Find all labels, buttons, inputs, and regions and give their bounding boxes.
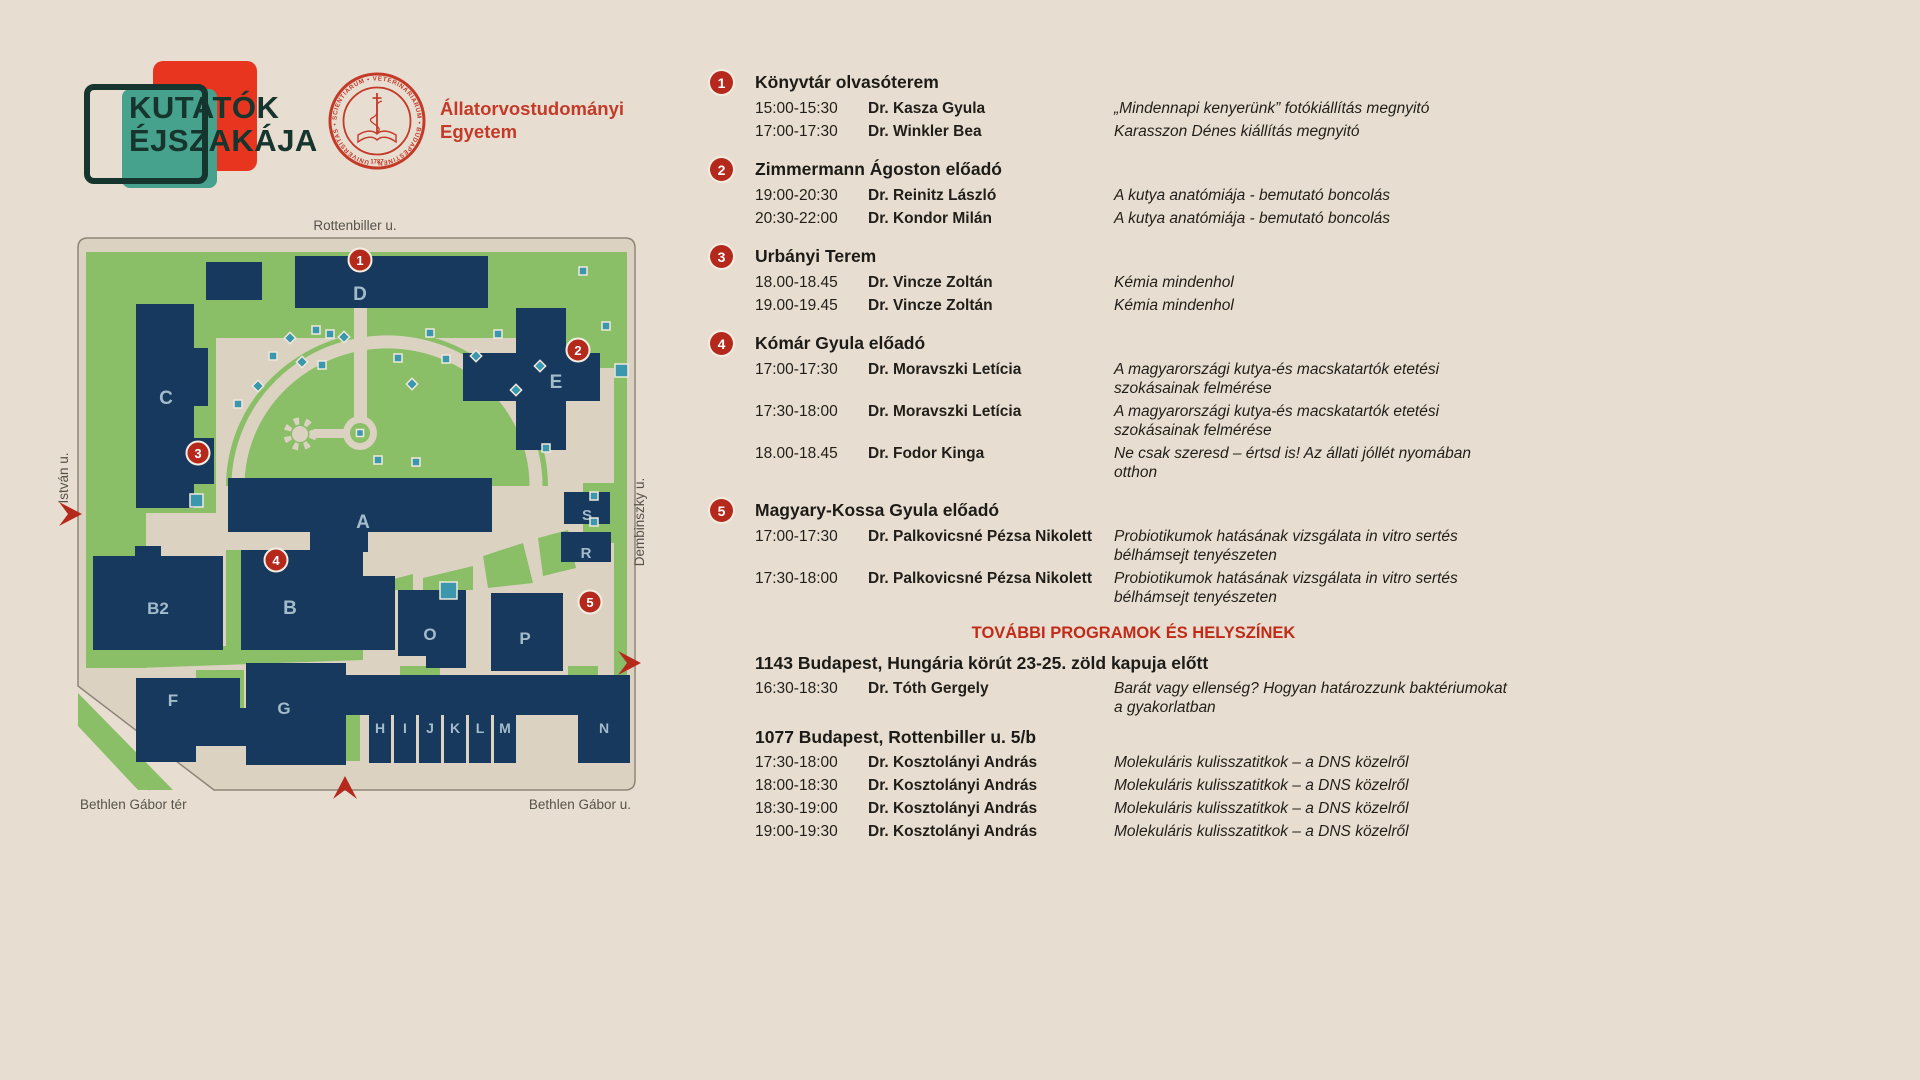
event-speaker: Dr. Reinitz László [868, 186, 1114, 205]
venue-block: 5Magyary-Kossa Gyula előadó17:00-17:30Dr… [710, 499, 1512, 607]
event-title: Barát vagy ellenség? Hogyan határozzunk … [1114, 679, 1512, 717]
event-time: 19:00-19:30 [755, 822, 868, 841]
event-speaker: Dr. Vincze Zoltán [868, 296, 1114, 315]
event-title: A kutya anatómiája - bemutató boncolás [1114, 186, 1512, 205]
venue-name: Zimmermann Ágoston előadó [755, 159, 1002, 180]
venue-header: 5Magyary-Kossa Gyula előadó [710, 499, 1512, 522]
venue-block: 4Kómár Gyula előadó17:00-17:30Dr. Moravs… [710, 332, 1512, 482]
event-time: 16:30-18:30 [755, 679, 868, 717]
venue-name: Kómár Gyula előadó [755, 333, 925, 354]
venue-block: 1Könyvtár olvasóterem15:00-15:30Dr. Kasz… [710, 71, 1512, 141]
venue-number-badge: 1 [710, 71, 733, 94]
map-marker-2: 2 [567, 339, 590, 362]
event-speaker: Dr. Kasza Gyula [868, 99, 1114, 118]
venue-block: 3Urbányi Terem18.00-18.45Dr. Vincze Zolt… [710, 245, 1512, 315]
map-marker-3: 3 [187, 442, 210, 465]
tree-marker [426, 329, 434, 337]
event-speaker: Dr. Fodor Kinga [868, 444, 1114, 482]
event-row: 17:00-17:30Dr. Winkler BeaKarasszon Déne… [755, 122, 1512, 141]
venue-header: 4Kómár Gyula előadó [710, 332, 1512, 355]
seal-year: 1787 [370, 160, 384, 166]
tree-marker [326, 330, 334, 338]
street-label-dembinszky: Dembinszky u. [632, 478, 647, 567]
venue-number-badge: 3 [710, 245, 733, 268]
event-speaker: Dr. Moravszki Letícia [868, 402, 1114, 440]
event-row: 18:00-18:30Dr. Kosztolányi AndrásMolekul… [755, 776, 1512, 795]
svg-text:1: 1 [356, 253, 363, 268]
location-block: 1077 Budapest, Rottenbiller u. 5/b17:30-… [710, 727, 1512, 841]
event-time: 17:00-17:30 [755, 122, 868, 141]
event-row: 15:00-15:30Dr. Kasza Gyula„Mindennapi ke… [755, 99, 1512, 118]
building-label-k: K [450, 720, 460, 736]
event-time: 18.00-18.45 [755, 444, 868, 482]
tree-marker [312, 326, 320, 334]
location-name: 1077 Budapest, Rottenbiller u. 5/b [755, 727, 1512, 748]
event-time: 18.00-18.45 [755, 273, 868, 292]
event-time: 20:30-22:00 [755, 209, 868, 228]
venue-name: Urbányi Terem [755, 246, 876, 267]
street-label-istvan: István u. [56, 452, 71, 503]
event-title: Probiotikumok hatásának vizsgálata in vi… [1114, 527, 1512, 565]
tree-marker [394, 354, 402, 362]
location-name: 1143 Budapest, Hungária körút 23-25. zöl… [755, 653, 1512, 674]
event-title: A magyarországi kutya-és macskatartók et… [1114, 402, 1512, 440]
event-time: 17:30-18:00 [755, 402, 868, 440]
tree-marker [542, 444, 550, 452]
event-row: 16:30-18:30Dr. Tóth GergelyBarát vagy el… [755, 679, 1512, 717]
tree-marker [318, 361, 326, 369]
more-programs-heading: TOVÁBBI PROGRAMOK ÉS HELYSZÍNEK [755, 624, 1512, 643]
event-time: 17:30-18:00 [755, 569, 868, 607]
event-row: 19:00-20:30Dr. Reinitz LászlóA kutya ana… [755, 186, 1512, 205]
event-row: 18.00-18.45Dr. Vincze ZoltánKémia minden… [755, 273, 1512, 292]
building-small [206, 262, 262, 300]
venue-number-badge: 2 [710, 158, 733, 181]
tree-marker [615, 364, 628, 377]
event-title: Kémia mindenhol [1114, 273, 1512, 292]
building-label-b2: B2 [147, 599, 169, 618]
event-title: Probiotikumok hatásának vizsgálata in vi… [1114, 569, 1512, 607]
event-speaker: Dr. Winkler Bea [868, 122, 1114, 141]
building-label-n: N [599, 720, 609, 736]
venue-header: 1Könyvtár olvasóterem [710, 71, 1512, 94]
building-label-d: D [353, 284, 367, 305]
event-row: 18:30-19:00Dr. Kosztolányi AndrásMolekul… [755, 799, 1512, 818]
building-g [246, 663, 346, 765]
building-b2 [93, 546, 223, 650]
event-speaker: Dr. Palkovicsné Pézsa Nikolett [868, 569, 1114, 607]
event-row: 17:30-18:00Dr. Kosztolányi AndrásMolekul… [755, 753, 1512, 772]
building-label-j: J [426, 720, 434, 736]
event-speaker: Dr. Kosztolányi András [868, 799, 1114, 818]
tree-marker [412, 458, 420, 466]
venue-block: 2Zimmermann Ágoston előadó19:00-20:30Dr.… [710, 158, 1512, 228]
building-label-g: G [277, 699, 290, 718]
venue-header: 2Zimmermann Ágoston előadó [710, 158, 1512, 181]
kutatok-ejszakaja-logo: KUTATÓK ÉJSZAKÁJA [75, 58, 335, 203]
street-label-rottenbiller: Rottenbiller u. [313, 218, 396, 233]
logo-wordmark: KUTATÓK ÉJSZAKÁJA [129, 91, 318, 157]
building-label-b: B [283, 598, 297, 619]
university-name-line1: Állatorvostudományi [440, 97, 624, 120]
event-title: A magyarországi kutya-és macskatartók et… [1114, 360, 1512, 398]
tree-marker [602, 322, 610, 330]
tree-marker [374, 456, 382, 464]
building-label-r: R [581, 545, 592, 562]
svg-text:4: 4 [272, 553, 280, 568]
event-time: 17:00-17:30 [755, 527, 868, 565]
map-marker-4: 4 [265, 549, 288, 572]
tree-marker [590, 492, 598, 500]
more-programs-section: TOVÁBBI PROGRAMOK ÉS HELYSZÍNEK 1143 Bud… [710, 624, 1512, 841]
map-marker-5: 5 [579, 591, 602, 614]
event-speaker: Dr. Kondor Milán [868, 209, 1114, 228]
event-title: Karasszon Dénes kiállítás megnyitó [1114, 122, 1512, 141]
event-time: 18:30-19:00 [755, 799, 868, 818]
building-label-f: F [168, 691, 178, 710]
svg-text:5: 5 [586, 595, 593, 610]
event-row: 19.00-19.45Dr. Vincze ZoltánKémia minden… [755, 296, 1512, 315]
event-time: 15:00-15:30 [755, 99, 868, 118]
event-time: 17:30-18:00 [755, 753, 868, 772]
building-label-h: H [375, 720, 385, 736]
university-name-line2: Egyetem [440, 120, 624, 143]
building-label-e: E [550, 372, 563, 393]
event-time: 18:00-18:30 [755, 776, 868, 795]
svg-text:2: 2 [574, 343, 581, 358]
location-block: 1143 Budapest, Hungária körút 23-25. zöl… [710, 653, 1512, 717]
building-label-i: I [403, 720, 407, 736]
event-time: 17:00-17:30 [755, 360, 868, 398]
building-label-c: C [159, 388, 173, 409]
event-title: Molekuláris kulisszatitkok – a DNS közel… [1114, 799, 1512, 818]
tree-marker [442, 355, 450, 363]
schedule-panel: 1Könyvtár olvasóterem15:00-15:30Dr. Kasz… [710, 71, 1512, 851]
venue-number-badge: 4 [710, 332, 733, 355]
event-title: Molekuláris kulisszatitkok – a DNS közel… [1114, 753, 1512, 772]
building-label-o: O [423, 625, 436, 644]
event-row: 17:00-17:30Dr. Palkovicsné Pézsa Nikolet… [755, 527, 1512, 565]
venue-name: Könyvtár olvasóterem [755, 72, 939, 93]
event-speaker: Dr. Kosztolányi András [868, 753, 1114, 772]
event-time: 19:00-20:30 [755, 186, 868, 205]
event-row: 17:00-17:30Dr. Moravszki LetíciaA magyar… [755, 360, 1512, 398]
tree-marker [590, 518, 598, 526]
tree-marker [440, 582, 457, 599]
tree-marker [494, 330, 502, 338]
venue-number-badge: 5 [710, 499, 733, 522]
event-title: Ne csak szeresd – értsd is! Az állati jó… [1114, 444, 1512, 482]
tree-marker [579, 267, 587, 275]
tree-marker [269, 352, 277, 360]
event-title: „Mindennapi kenyerünk” fotókiállítás meg… [1114, 99, 1512, 118]
venue-list: 1Könyvtár olvasóterem15:00-15:30Dr. Kasz… [710, 71, 1512, 607]
event-speaker: Dr. Moravszki Letícia [868, 360, 1114, 398]
event-title: Molekuláris kulisszatitkok – a DNS közel… [1114, 822, 1512, 841]
event-row: 20:30-22:00Dr. Kondor MilánA kutya anató… [755, 209, 1512, 228]
university-seal: UNIVERSITAS • SCIENTIARUM • VETERINARIAR… [326, 70, 428, 172]
event-speaker: Dr. Tóth Gergely [868, 679, 1114, 717]
event-row: 18.00-18.45Dr. Fodor KingaNe csak szeres… [755, 444, 1512, 482]
building-row-bar [343, 675, 630, 715]
street-label-bethlen-ter: Bethlen Gábor tér [80, 797, 187, 812]
tree-marker [190, 494, 203, 507]
event-row: 19:00-19:30Dr. Kosztolányi AndrásMolekul… [755, 822, 1512, 841]
university-name: Állatorvostudományi Egyetem [440, 97, 624, 143]
event-row: 17:30-18:00Dr. Palkovicsné Pézsa Nikolet… [755, 569, 1512, 607]
street-label-bethlen-u: Bethlen Gábor u. [529, 797, 631, 812]
event-title: A kutya anatómiája - bemutató boncolás [1114, 209, 1512, 228]
event-title: Kémia mindenhol [1114, 296, 1512, 315]
building-label-l: L [476, 720, 485, 736]
event-row: 17:30-18:00Dr. Moravszki LetíciaA magyar… [755, 402, 1512, 440]
event-speaker: Dr. Kosztolányi András [868, 776, 1114, 795]
logo-line1: KUTATÓK [129, 91, 318, 124]
more-locations: 1143 Budapest, Hungária körút 23-25. zöl… [710, 653, 1512, 841]
venue-header: 3Urbányi Terem [710, 245, 1512, 268]
campus-map: D C E A B2 B S R O P F G H I J K L M N [54, 216, 658, 836]
event-time: 19.00-19.45 [755, 296, 868, 315]
tree-marker [234, 400, 242, 408]
event-title: Molekuláris kulisszatitkok – a DNS közel… [1114, 776, 1512, 795]
venue-name: Magyary-Kossa Gyula előadó [755, 500, 999, 521]
event-speaker: Dr. Vincze Zoltán [868, 273, 1114, 292]
building-label-m: M [499, 720, 511, 736]
map-marker-1: 1 [349, 249, 372, 272]
event-speaker: Dr. Palkovicsné Pézsa Nikolett [868, 527, 1114, 565]
logo-line2: ÉJSZAKÁJA [129, 124, 318, 157]
tree-marker [357, 430, 364, 437]
building-d [295, 256, 488, 308]
building-label-p: P [519, 629, 530, 648]
svg-text:3: 3 [194, 446, 201, 461]
event-speaker: Dr. Kosztolányi András [868, 822, 1114, 841]
building-label-a: A [356, 512, 370, 533]
